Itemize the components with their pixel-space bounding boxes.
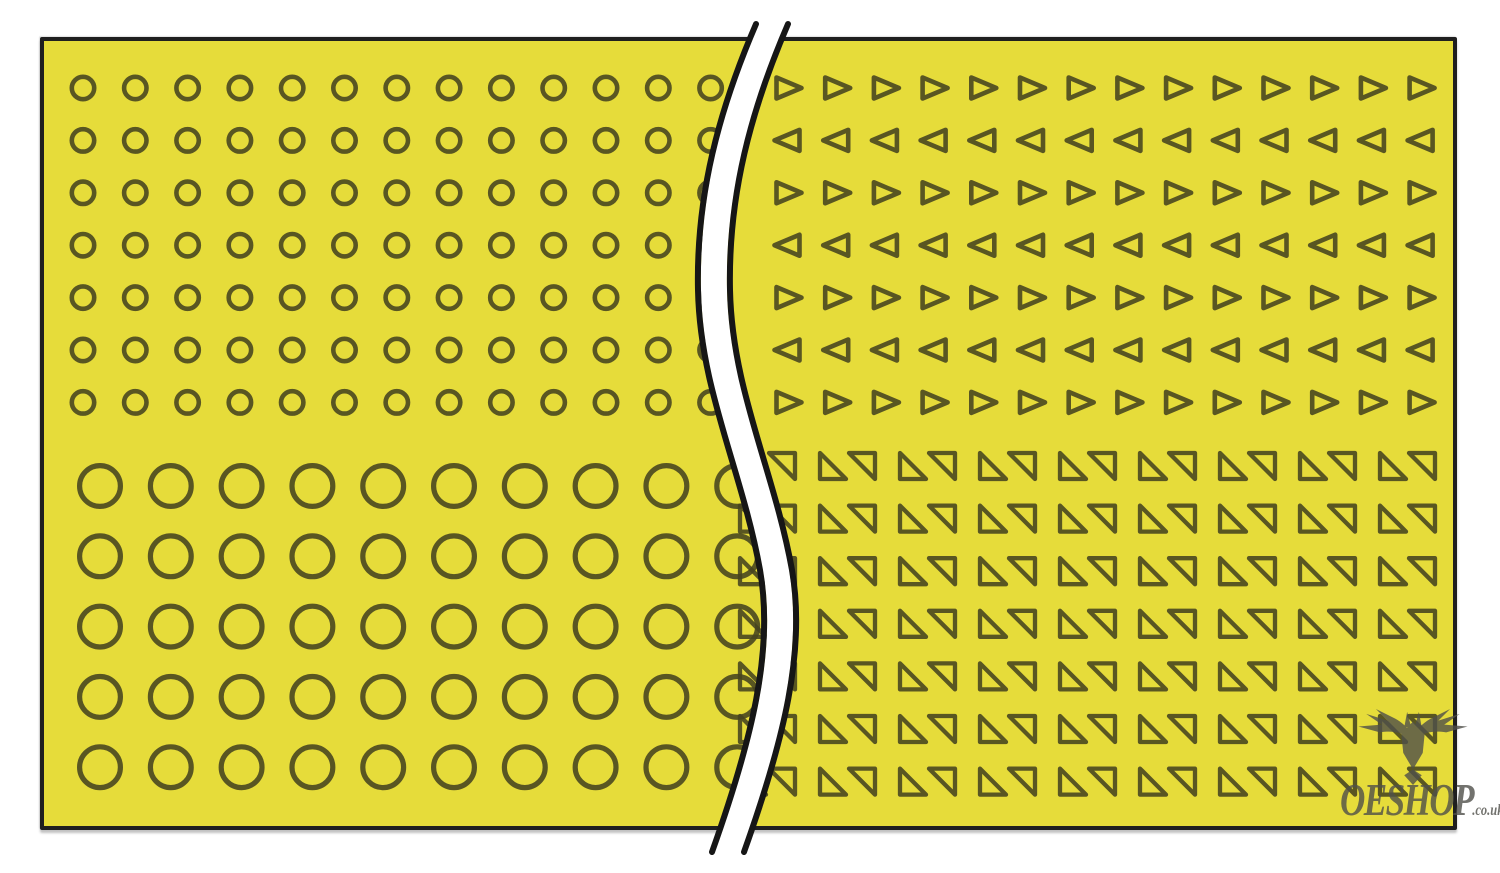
watermark-text: OESHOP.co.uk — [1340, 778, 1500, 823]
watermark-suffix: .co.uk — [1472, 802, 1500, 819]
product-image: OESHOP.co.uk — [0, 0, 1500, 873]
sticker-sheet-panel — [40, 37, 1457, 830]
watermark: OESHOP.co.uk — [1338, 706, 1500, 832]
watermark-brand: OESHOP — [1340, 775, 1473, 825]
